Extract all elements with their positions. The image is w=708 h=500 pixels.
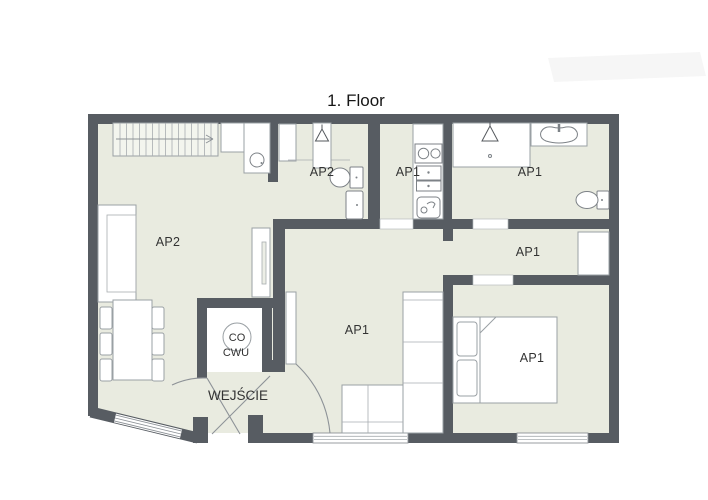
label-ap2-bathroom: AP2 bbox=[310, 165, 335, 179]
label-ap1-living: AP1 bbox=[345, 323, 370, 337]
counter-with-sink bbox=[244, 123, 270, 173]
wall-bedroom-band-right bbox=[513, 275, 609, 285]
wall-boiler-corner bbox=[262, 360, 285, 372]
chair-icon bbox=[100, 333, 112, 355]
label-ap1-bedroom: AP1 bbox=[520, 351, 545, 365]
stairs-icon bbox=[113, 123, 218, 156]
chair-icon bbox=[100, 307, 112, 329]
wall-bottom-seg2 bbox=[408, 433, 517, 443]
toilet-icon bbox=[330, 167, 363, 188]
wardrobe-hanger-icon bbox=[453, 122, 530, 168]
entrance-pier-left bbox=[193, 417, 208, 443]
shower-icon bbox=[279, 124, 296, 161]
chair-icon bbox=[152, 307, 164, 329]
wall-hall-stub bbox=[443, 229, 453, 241]
label-entrance: WEJŚCIE bbox=[208, 388, 268, 403]
wall-bedroom-band-left bbox=[443, 275, 473, 285]
wall-kitchen-left bbox=[368, 124, 380, 219]
wardrobe-hanger-icon bbox=[313, 123, 331, 168]
label-ap1-hall: AP1 bbox=[516, 245, 541, 259]
sofa-icon bbox=[98, 205, 136, 302]
chair-icon bbox=[100, 359, 112, 381]
pillow-icon bbox=[457, 322, 477, 356]
label-boiler-co: CO bbox=[229, 332, 246, 344]
wall-boiler-top bbox=[197, 298, 285, 308]
wall-mid-band-right bbox=[508, 219, 609, 229]
stove-icon bbox=[415, 144, 442, 163]
wall-boiler-left bbox=[197, 308, 207, 378]
window-living bbox=[313, 433, 408, 443]
window-bedroom bbox=[517, 433, 588, 443]
wall-bottom-seg1 bbox=[263, 433, 313, 443]
door-bathroom bbox=[473, 219, 508, 229]
background-smudge bbox=[548, 52, 706, 82]
floorplan-drawing: 1. Floor AP2 AP2 AP1 AP1 AP1 AP1 AP1 WEJ… bbox=[0, 0, 708, 500]
door-entrance-opening bbox=[208, 433, 248, 443]
kitchen-sink-icon bbox=[417, 197, 440, 218]
chair-icon bbox=[152, 359, 164, 381]
label-boiler-cwu: CWU bbox=[223, 347, 249, 359]
wall-bottom-seg3 bbox=[588, 433, 609, 443]
dining-table-icon bbox=[113, 300, 152, 380]
door-kitchen bbox=[380, 219, 413, 229]
label-ap1-bathroom: AP1 bbox=[518, 165, 543, 179]
chair-icon bbox=[152, 333, 164, 355]
wall-living-bedroom bbox=[443, 285, 453, 433]
page-title: 1. Floor bbox=[327, 91, 385, 110]
stair-landing bbox=[221, 123, 244, 152]
toilet-icon bbox=[576, 191, 609, 209]
wall-mid-band-left bbox=[273, 219, 473, 229]
label-ap1-kitchen: AP1 bbox=[396, 165, 421, 179]
door-bedroom bbox=[473, 275, 513, 285]
floorplan-page: 1. Floor AP2 AP2 AP1 AP1 AP1 AP1 AP1 WEJ… bbox=[0, 0, 708, 500]
wall-right bbox=[609, 124, 619, 443]
entrance-pier-right bbox=[248, 415, 263, 443]
wall-left bbox=[88, 124, 98, 416]
tv-cabinet-icon bbox=[252, 228, 270, 297]
door-leaf-ap1 bbox=[286, 292, 296, 364]
pillow-icon bbox=[457, 360, 477, 396]
label-ap2-living: AP2 bbox=[156, 235, 181, 249]
washbasin-icon bbox=[531, 123, 587, 146]
washbasin-icon bbox=[346, 191, 363, 219]
hall-wardrobe bbox=[578, 232, 609, 275]
